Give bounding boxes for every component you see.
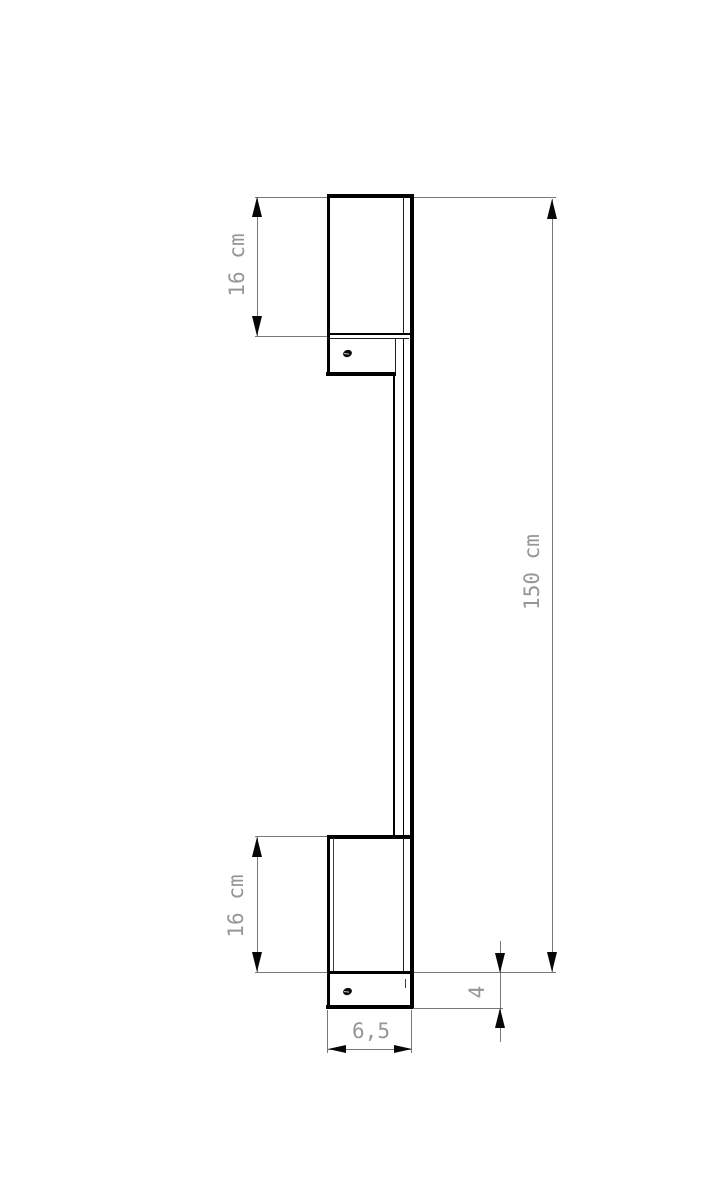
bottom-shade-inner-left-line [333,838,334,971]
screw-icon [342,349,353,358]
top-bracket-bottom-edge [326,372,396,376]
top-bracket-right-edge [395,339,396,372]
arrow-down-icon [547,952,557,972]
arrow-up-icon [252,197,262,217]
bottom-bracket-bottom-edge [326,1005,413,1009]
dimension-label-bracket-height: 4 [465,972,489,1012]
top-shade-bottom-line-b [327,338,409,339]
dimension-label-body-width: 6,5 [336,1019,406,1043]
top-shade-bottom-line-a [327,333,411,335]
dimension-label-overall-length: 150 cm [520,522,544,622]
arrow-right-icon [394,1045,412,1053]
arrow-down-icon [252,952,262,972]
extension-line-bottom-shade-top [255,836,327,837]
dimension-label-bottom-shade: 16 cm [224,864,248,948]
top-shade-inner-line [403,198,404,333]
bottom-shade-bottom-edge [327,971,411,974]
bottom-shade-left-edge [327,835,330,1008]
arrow-up-icon [252,837,262,857]
top-shade-left-edge [327,194,330,376]
arrow-up-icon [495,1008,505,1028]
arrow-down-icon [495,953,505,973]
bottom-shade-top-edge [327,835,410,839]
dimension-line-150cm [552,199,553,972]
profile-left-line [393,376,395,838]
dimension-label-top-shade: 16 cm [225,223,249,307]
screw-icon [342,987,353,996]
extension-line-top-shade-bottom [255,336,328,337]
arrow-left-icon [328,1045,346,1053]
lamp-back-edge [410,194,414,1008]
bottom-shade-inner-right-line [403,838,404,971]
technical-drawing: 16 cm 16 cm 150 cm 4 6,5 [0,0,706,1200]
top-shade-top-edge [327,194,414,198]
bottom-bracket-cable-detail [405,979,406,988]
arrow-up-icon [547,199,557,219]
profile-front-line [403,339,405,838]
arrow-down-icon [252,316,262,336]
